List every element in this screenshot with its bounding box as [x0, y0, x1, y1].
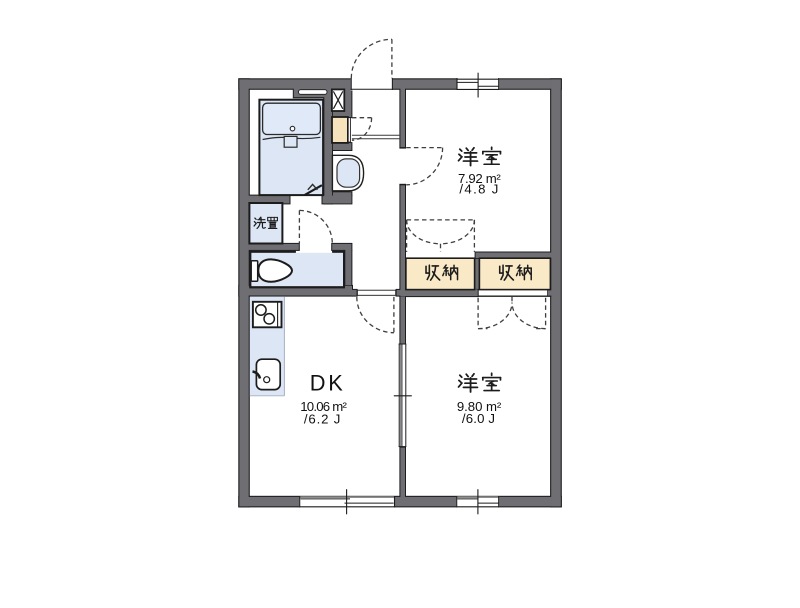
svg-text:/6.0 J: /6.0 J	[462, 411, 495, 426]
svg-text:/6.2 J: /6.2 J	[304, 412, 341, 427]
svg-text:/4.8 J: /4.8 J	[459, 182, 498, 197]
